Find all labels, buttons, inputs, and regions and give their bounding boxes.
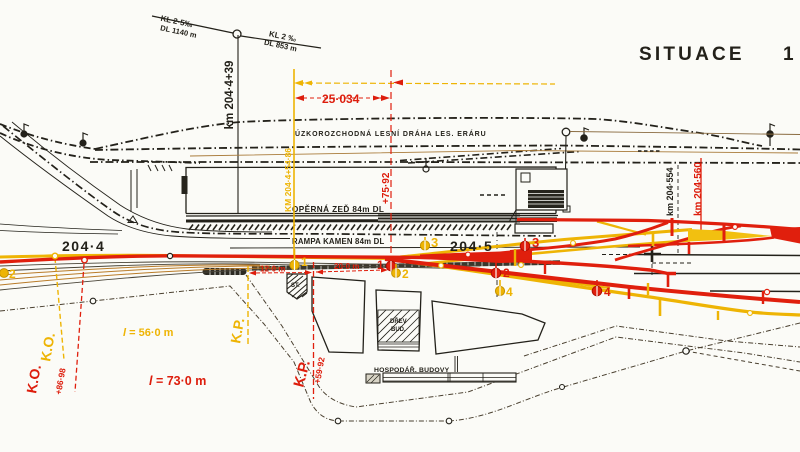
svg-text:1: 1 xyxy=(783,44,794,65)
svg-text:204·4: 204·4 xyxy=(62,238,105,254)
svg-text:204·5: 204·5 xyxy=(450,238,493,254)
svg-text:25·034: 25·034 xyxy=(322,92,360,106)
svg-text:OPĚRNÁ ZEĎ 84m DL: OPĚRNÁ ZEĎ 84m DL xyxy=(292,203,384,214)
svg-text:1: 1 xyxy=(377,258,384,272)
svg-text:ST.: ST. xyxy=(291,283,300,289)
svg-text:3: 3 xyxy=(532,235,539,250)
svg-text:2: 2 xyxy=(503,266,510,280)
svg-text:km 204·560: km 204·560 xyxy=(693,162,704,216)
svg-text:SITUACE: SITUACE xyxy=(639,44,745,65)
svg-text:+75·92: +75·92 xyxy=(381,172,392,204)
svg-text:km 204·554: km 204·554 xyxy=(665,167,675,216)
svg-text:2: 2 xyxy=(9,267,16,281)
svg-text:RAMPA KAMEN 84m DL: RAMPA KAMEN 84m DL xyxy=(292,237,384,246)
svg-text:1: 1 xyxy=(301,255,308,269)
svg-text:DŘEV: DŘEV xyxy=(390,317,407,325)
svg-text:4: 4 xyxy=(604,285,611,299)
svg-text:BUD.: BUD. xyxy=(391,327,406,333)
svg-text:3: 3 xyxy=(431,235,438,250)
svg-text:l = 56·0 m: l = 56·0 m xyxy=(123,327,174,339)
svg-text:l = 73·0 m: l = 73·0 m xyxy=(149,374,206,388)
svg-text:KM 204·4+54·86: KM 204·4+54·86 xyxy=(283,148,293,212)
svg-text:2: 2 xyxy=(402,267,409,281)
svg-text:20·0 m: 20·0 m xyxy=(334,262,359,271)
svg-text:12·0 m: 12·0 m xyxy=(260,265,285,274)
svg-text:4: 4 xyxy=(506,285,513,299)
svg-text:km 204·4+39: km 204·4+39 xyxy=(224,61,236,130)
